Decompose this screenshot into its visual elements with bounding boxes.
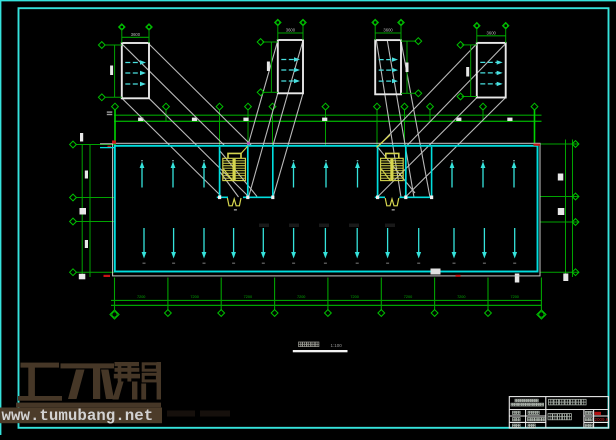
svg-text:3600: 3600 [487,30,497,35]
svg-text:7200: 7200 [350,295,358,299]
svg-text:3600: 3600 [131,32,141,37]
svg-text:7200: 7200 [404,295,412,299]
svg-text:7200: 7200 [510,295,518,299]
svg-text:3600: 3600 [383,28,393,33]
svg-text:3600: 3600 [286,28,296,33]
svg-text:7200: 7200 [137,295,145,299]
svg-text:7200: 7200 [190,295,198,299]
svg-text:www.tumubang.net: www.tumubang.net [2,407,154,425]
svg-text:7200: 7200 [297,295,305,299]
svg-text:7200: 7200 [244,295,252,299]
svg-text:1:100: 1:100 [331,343,343,348]
svg-text:2009.6: 2009.6 [595,417,609,422]
svg-text:7200: 7200 [457,295,465,299]
